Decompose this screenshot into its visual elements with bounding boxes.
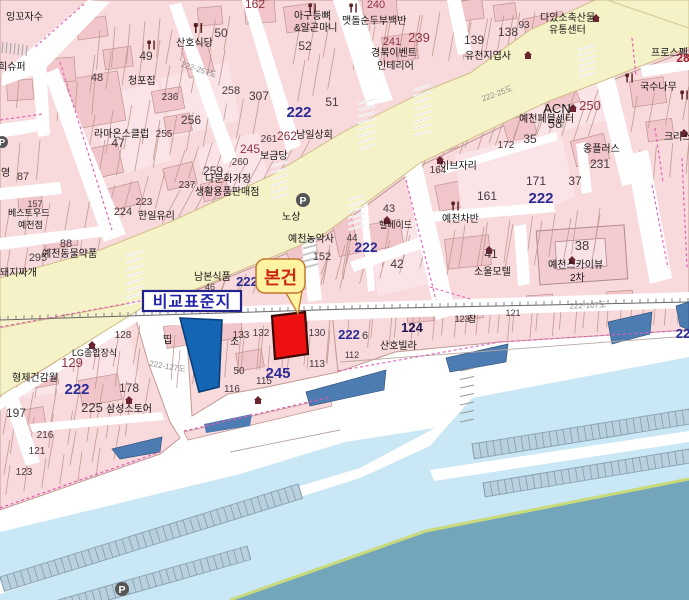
- svg-text:다문화가정: 다문화가정: [205, 173, 251, 185]
- svg-text:261: 261: [261, 134, 278, 145]
- svg-text:132: 132: [253, 328, 270, 339]
- svg-text:청포집: 청포집: [128, 75, 156, 87]
- svg-text:잡: 잡: [468, 313, 476, 324]
- svg-text:43: 43: [383, 203, 395, 215]
- svg-text:50: 50: [233, 366, 245, 377]
- svg-text:256: 256: [181, 113, 201, 127]
- svg-text:113: 113: [309, 359, 325, 370]
- svg-text:예천스카이뷰: 예천스카이뷰: [548, 259, 603, 271]
- svg-text:172: 172: [498, 140, 515, 151]
- svg-text:262: 262: [277, 129, 297, 143]
- svg-text:노상: 노상: [282, 211, 300, 223]
- svg-text:121: 121: [505, 308, 520, 318]
- svg-text:222: 222: [286, 104, 311, 121]
- svg-text:258: 258: [222, 85, 240, 97]
- svg-text:P: P: [118, 584, 125, 596]
- svg-text:2차: 2차: [570, 272, 585, 284]
- svg-text:178: 178: [119, 381, 139, 395]
- svg-text:ACN: ACN: [543, 101, 570, 116]
- svg-text:비교표준지: 비교표준지: [153, 293, 232, 311]
- svg-text:유천지엽사: 유천지엽사: [465, 50, 511, 62]
- svg-text:P: P: [299, 195, 306, 207]
- svg-text:예천점: 예천점: [18, 219, 43, 230]
- svg-text:128: 128: [115, 330, 132, 341]
- svg-text:41: 41: [484, 247, 498, 261]
- svg-text:형제건감월: 형제건감월: [12, 372, 58, 384]
- svg-text:225: 225: [81, 400, 103, 415]
- svg-text:경북이벤트: 경북이벤트: [371, 46, 417, 59]
- svg-text:라마온스클럽: 라마온스클럽: [94, 128, 149, 140]
- svg-text:소: 소: [230, 336, 239, 348]
- svg-text:123: 123: [16, 467, 33, 478]
- svg-text:옹플러스: 옹플러스: [583, 143, 620, 155]
- svg-text:예천차반: 예천차반: [442, 213, 479, 225]
- svg-text:이브자리: 이브자리: [440, 160, 477, 172]
- svg-text:239: 239: [408, 30, 430, 45]
- svg-text:6: 6: [362, 330, 368, 342]
- svg-text:42: 42: [390, 257, 404, 271]
- svg-text:237: 237: [179, 180, 196, 191]
- svg-text:115: 115: [256, 376, 272, 387]
- svg-text:국수나무: 국수나무: [640, 81, 677, 93]
- svg-text:아구등뼈: 아구등뼈: [294, 10, 331, 22]
- svg-text:245: 245: [240, 142, 260, 156]
- svg-text:161: 161: [477, 189, 497, 203]
- svg-text:잉꼬자수: 잉꼬자수: [6, 11, 43, 23]
- svg-text:돼지짜개: 돼지짜개: [0, 267, 37, 279]
- svg-text:241: 241: [383, 36, 401, 48]
- svg-text:37: 37: [568, 174, 582, 188]
- svg-text:236: 236: [162, 92, 179, 103]
- svg-text:인테리어: 인테리어: [377, 60, 414, 72]
- svg-text:예천동물약품: 예천동물약품: [42, 248, 97, 260]
- svg-text:산호식당: 산호식당: [176, 37, 213, 49]
- svg-text:222: 222: [236, 274, 258, 289]
- svg-text:소울모텔: 소울모텔: [474, 266, 511, 278]
- svg-text:112: 112: [345, 350, 359, 360]
- svg-text:한일유리: 한일유리: [138, 210, 175, 222]
- svg-text:35: 35: [523, 132, 537, 146]
- svg-text:52: 52: [298, 39, 312, 53]
- svg-text:260: 260: [232, 157, 249, 168]
- svg-text:베스트우드: 베스트우드: [8, 208, 49, 218]
- svg-text:유통센터: 유통센터: [549, 24, 586, 36]
- svg-text:띱: 띱: [163, 334, 172, 346]
- svg-text:121: 121: [29, 446, 46, 457]
- svg-text:224: 224: [114, 206, 132, 218]
- svg-text:산호빌라: 산호빌라: [380, 340, 417, 352]
- svg-text:93: 93: [518, 20, 530, 31]
- svg-text:맷돌순두부백반: 맷돌순두부백반: [342, 15, 406, 27]
- svg-text:50: 50: [214, 26, 228, 40]
- svg-text:LG종합장식: LG종합장식: [72, 348, 117, 358]
- svg-text:예천농악사: 예천농악사: [288, 233, 334, 245]
- svg-text:222: 222: [64, 381, 89, 398]
- svg-text:223: 223: [136, 197, 153, 208]
- svg-text:P: P: [0, 137, 5, 147]
- svg-text:139: 139: [464, 33, 484, 47]
- svg-text:48: 48: [91, 72, 103, 84]
- svg-text:138: 138: [498, 25, 518, 39]
- svg-text:&알곤마니: &알곤마니: [294, 22, 337, 34]
- svg-text:307: 307: [249, 89, 269, 103]
- svg-text:255: 255: [156, 129, 173, 140]
- svg-text:124: 124: [401, 320, 423, 335]
- svg-text:희슈퍼: 희슈퍼: [0, 61, 26, 73]
- svg-text:영: 영: [1, 167, 10, 179]
- svg-text:240: 240: [367, 0, 385, 11]
- svg-text:231: 231: [590, 157, 610, 171]
- svg-text:222: 222: [338, 327, 360, 342]
- svg-text:44: 44: [346, 233, 358, 244]
- svg-text:222: 222: [354, 239, 378, 255]
- svg-text:보금당: 보금당: [260, 150, 288, 162]
- svg-text:152: 152: [313, 251, 331, 263]
- svg-text:116: 116: [224, 384, 240, 395]
- svg-text:87: 87: [17, 171, 29, 183]
- svg-text:222: 222: [528, 190, 553, 207]
- svg-text:51: 51: [325, 95, 339, 109]
- svg-text:헬메이드: 헬메이드: [379, 220, 412, 230]
- svg-text:38: 38: [575, 238, 589, 253]
- svg-text:남일상회: 남일상회: [296, 129, 333, 141]
- svg-text:22: 22: [676, 326, 689, 341]
- svg-text:생활용품판매점: 생활용품판매점: [195, 185, 259, 198]
- svg-text:삼성스토어: 삼성스토어: [106, 403, 152, 415]
- svg-text:222-107도: 222-107도: [569, 300, 606, 310]
- svg-text:남본식품: 남본식품: [194, 271, 231, 283]
- svg-text:다있소축산물: 다있소축산물: [540, 12, 595, 24]
- svg-text:197: 197: [6, 406, 26, 420]
- svg-text:본건: 본건: [264, 268, 297, 288]
- svg-text:130: 130: [309, 328, 326, 339]
- svg-text:162: 162: [245, 0, 265, 11]
- svg-text:크리스: 크리스: [664, 131, 689, 143]
- svg-text:250: 250: [579, 98, 601, 113]
- svg-text:171: 171: [526, 174, 546, 188]
- svg-text:216: 216: [37, 430, 54, 441]
- svg-text:49: 49: [139, 49, 153, 63]
- svg-text:프로스펙: 프로스펙: [651, 47, 688, 59]
